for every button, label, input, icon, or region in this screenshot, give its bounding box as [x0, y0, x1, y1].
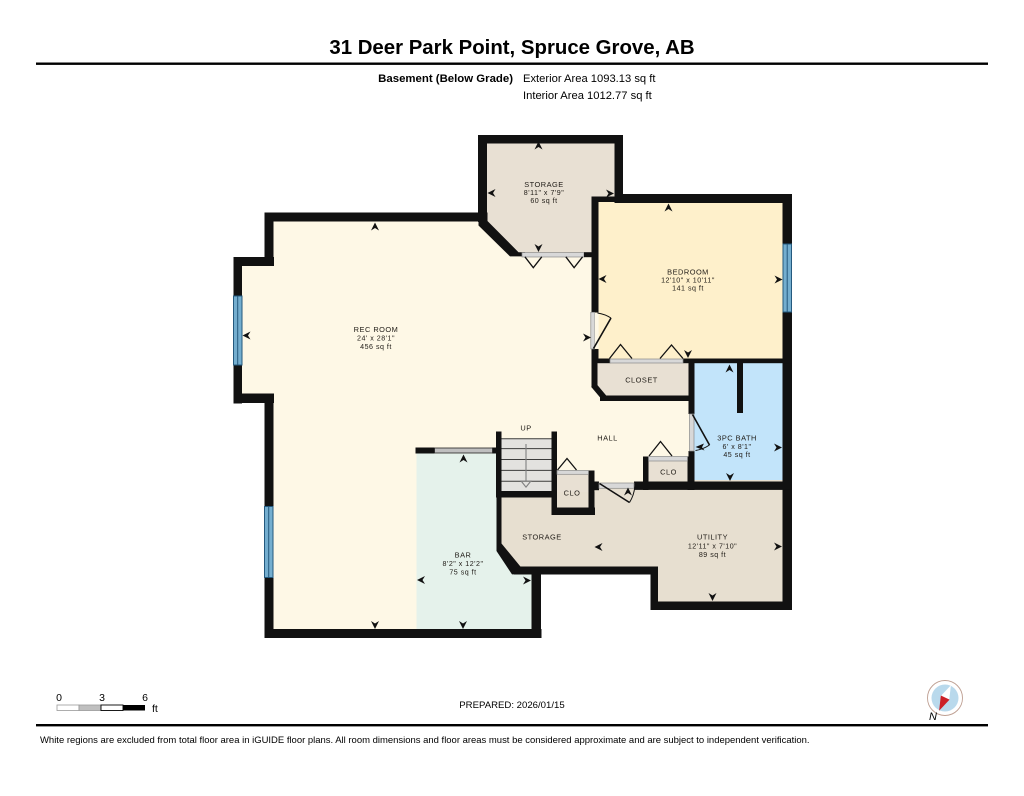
svg-text:12'11" x 7'10": 12'11" x 7'10" [688, 543, 737, 551]
svg-text:UP: UP [520, 424, 531, 433]
svg-text:12'10" x 10'11": 12'10" x 10'11" [661, 277, 715, 285]
svg-text:6' x 8'1": 6' x 8'1" [722, 443, 751, 451]
svg-text:N: N [929, 711, 937, 723]
svg-text:ft: ft [152, 703, 158, 715]
svg-text:STORAGE: STORAGE [524, 180, 564, 189]
svg-text:UTILITY: UTILITY [697, 533, 728, 542]
svg-text:HALL: HALL [597, 434, 618, 443]
svg-text:8'2" x 12'2": 8'2" x 12'2" [443, 560, 484, 568]
svg-text:8'11" x 7'9": 8'11" x 7'9" [524, 189, 564, 197]
svg-text:PREPARED: 2026/01/15: PREPARED: 2026/01/15 [459, 700, 564, 711]
svg-text:White regions are excluded fro: White regions are excluded from total fl… [40, 735, 809, 746]
svg-text:CLO: CLO [564, 489, 581, 498]
svg-text:Interior Area 1012.77 sq ft: Interior Area 1012.77 sq ft [523, 90, 653, 102]
svg-text:3PC BATH: 3PC BATH [717, 434, 757, 443]
svg-text:CLO: CLO [660, 468, 677, 477]
svg-text:31 Deer Park Point, Spruce Gro: 31 Deer Park Point, Spruce Grove, AB [329, 37, 694, 59]
svg-text:45 sq ft: 45 sq ft [723, 451, 750, 459]
svg-text:456 sq ft: 456 sq ft [360, 343, 392, 351]
svg-text:CLOSET: CLOSET [625, 376, 658, 385]
svg-text:0: 0 [56, 692, 62, 704]
svg-text:Basement (Below Grade): Basement (Below Grade) [378, 73, 513, 85]
svg-text:141 sq ft: 141 sq ft [672, 285, 704, 293]
svg-text:REC ROOM: REC ROOM [354, 325, 399, 334]
svg-text:STORAGE: STORAGE [522, 533, 562, 542]
svg-text:60 sq ft: 60 sq ft [530, 197, 557, 205]
svg-text:24' x 28'1": 24' x 28'1" [357, 335, 395, 343]
svg-text:89 sq ft: 89 sq ft [699, 551, 726, 559]
svg-text:6: 6 [142, 692, 148, 704]
svg-text:3: 3 [99, 692, 105, 704]
svg-text:BAR: BAR [455, 551, 472, 560]
svg-text:75 sq ft: 75 sq ft [449, 569, 476, 577]
svg-text:BEDROOM: BEDROOM [667, 268, 709, 277]
svg-text:Exterior Area 1093.13 sq ft: Exterior Area 1093.13 sq ft [523, 73, 656, 85]
